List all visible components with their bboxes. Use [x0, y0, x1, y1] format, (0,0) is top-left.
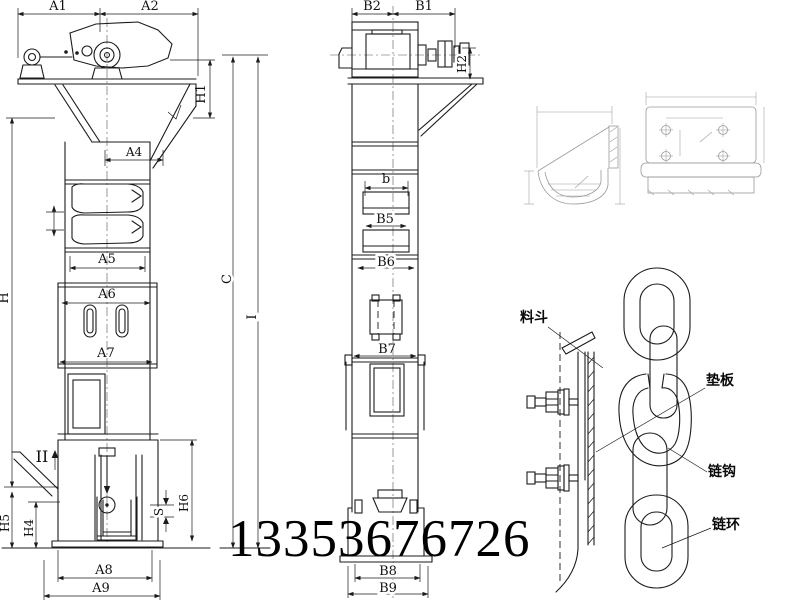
- dim-a6: A6: [97, 287, 116, 302]
- dim-a4: A4: [125, 145, 143, 159]
- dim-h2: H2: [455, 55, 469, 73]
- dim-a2: A2: [140, 0, 159, 14]
- mounting-plate-detail: [641, 92, 764, 195]
- dim-b6: B6: [377, 255, 395, 270]
- drawing-svg: A1 A2 H1 A4 A5 A6 A7 H II H5 H4 H6 S A8 …: [0, 0, 800, 608]
- dim-b1: B1: [415, 0, 433, 14]
- dim-a8: A8: [94, 563, 113, 578]
- section-mark: II: [36, 447, 49, 466]
- dim-b2: B2: [363, 0, 381, 14]
- dim-h4: H4: [22, 519, 36, 537]
- label-chain-hook: 链钩: [708, 463, 736, 480]
- dim-c: C: [220, 274, 235, 284]
- label-pad-plate: 垫板: [706, 372, 735, 389]
- dim-h: H: [0, 292, 12, 303]
- dim-b5: B5: [376, 212, 394, 227]
- dim-a9: A9: [91, 581, 110, 596]
- dim-b9: B9: [379, 581, 397, 596]
- chain-hook-shape: [619, 374, 691, 466]
- dimension-labels: A1 A2 H1 A4 A5 A6 A7 H II H5 H4 H6 S A8 …: [0, 0, 469, 596]
- dim-a1: A1: [48, 0, 67, 14]
- dim-h5: H5: [0, 514, 12, 532]
- part-labels: 料斗 垫板 链钩 链环: [520, 309, 740, 533]
- dim-b7: B7: [378, 342, 396, 357]
- dim-s: S: [152, 508, 166, 516]
- dim-i: I: [245, 314, 260, 319]
- bucket-section-detail: [524, 106, 625, 204]
- weld-arrow: [168, 105, 181, 119]
- bolt-cluster-lower: [527, 465, 578, 491]
- label-bucket: 料斗: [520, 309, 548, 326]
- dim-b: b: [382, 172, 390, 187]
- phone-number: 13353676726: [228, 510, 531, 568]
- chain-detail: [527, 268, 711, 592]
- bolt-cluster-upper: [527, 389, 578, 415]
- dim-a7: A7: [96, 346, 115, 361]
- elevator-drawing: A1 A2 H1 A4 A5 A6 A7 H II H5 H4 H6 S A8 …: [0, 0, 800, 608]
- upper-connector-link: [650, 326, 677, 418]
- pad-hatching: [588, 357, 594, 544]
- dim-h1: H1: [194, 84, 209, 104]
- dim-h6: H6: [177, 494, 191, 512]
- label-chain-link: 链环: [712, 516, 740, 533]
- upper-chain-link: [624, 268, 690, 360]
- lower-connector-link: [633, 433, 667, 525]
- dim-a5: A5: [97, 252, 116, 267]
